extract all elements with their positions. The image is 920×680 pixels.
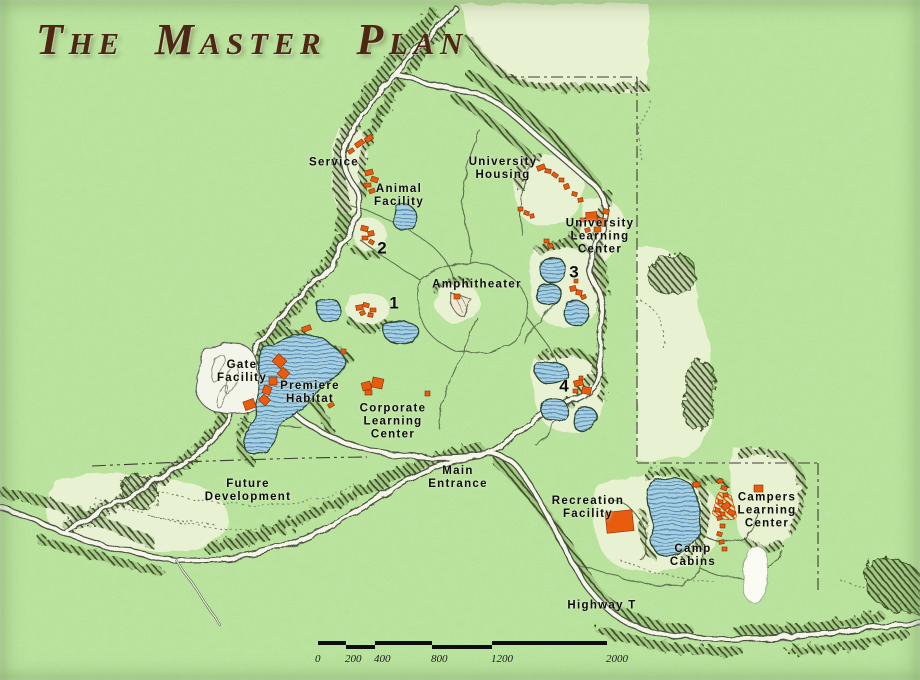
label-area-4: 4 bbox=[559, 376, 568, 395]
scale-label-200: 200 bbox=[345, 653, 362, 665]
label-area-1: 1 bbox=[389, 293, 398, 312]
label-university-learning-center: University Learning Center bbox=[566, 218, 635, 257]
label-camp-cabins: Camp Cabins bbox=[670, 543, 716, 569]
label-amphitheater: Amphitheater bbox=[432, 279, 522, 292]
label-university-housing: University Housing bbox=[469, 156, 538, 182]
label-service: Service bbox=[309, 157, 359, 170]
label-area-2: 2 bbox=[377, 238, 386, 257]
scale-segment bbox=[375, 641, 432, 645]
label-main-entrance: Main Entrance bbox=[428, 465, 488, 491]
scale-label-2000: 2000 bbox=[606, 653, 628, 665]
label-premiere-habitat: Premiere Habitat bbox=[280, 380, 340, 406]
scale-label-400: 400 bbox=[374, 653, 391, 665]
label-future-development: Future Development bbox=[205, 478, 292, 504]
scale-segment bbox=[432, 645, 492, 649]
label-area-3: 3 bbox=[569, 262, 578, 281]
map-artwork bbox=[0, 0, 920, 680]
label-campers-learning-center: Campers Learning Center bbox=[738, 492, 797, 531]
master-plan-map: The Master Plan Service Animal Facility … bbox=[0, 0, 920, 680]
scale-label-800: 800 bbox=[431, 653, 448, 665]
scale-segment bbox=[318, 641, 346, 645]
scale-label-1200: 1200 bbox=[491, 653, 513, 665]
scale-label-0: 0 bbox=[315, 653, 321, 665]
label-highway-t: Highway T bbox=[567, 600, 636, 613]
label-animal-facility: Animal Facility bbox=[374, 183, 424, 209]
map-title: The Master Plan bbox=[36, 14, 516, 65]
label-gate-facility: Gate Facility bbox=[217, 359, 267, 385]
scale-segment bbox=[492, 641, 607, 645]
scale-segment bbox=[346, 645, 375, 649]
label-corporate-learning-center: Corporate Learning Center bbox=[360, 403, 427, 442]
label-recreation-facility: Recreation Facility bbox=[552, 495, 624, 521]
